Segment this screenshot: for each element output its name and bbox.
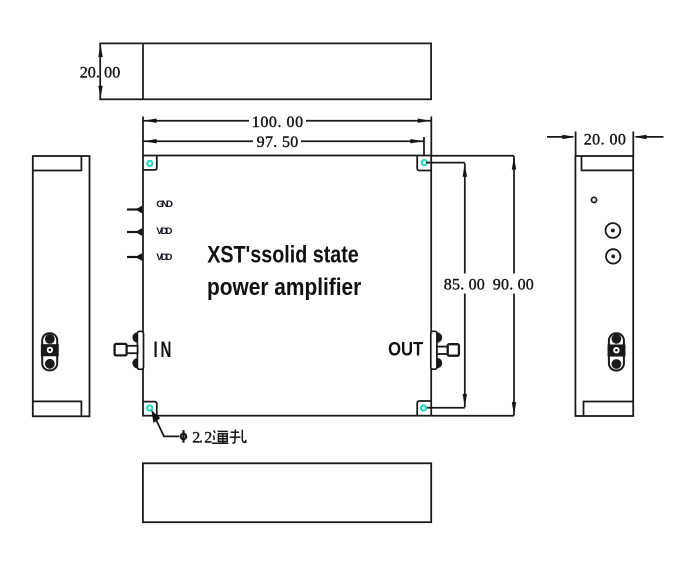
- svg-text:100. 00: 100. 00: [252, 114, 303, 131]
- svg-text:IN: IN: [154, 337, 175, 362]
- svg-text:VDD: VDD: [156, 252, 172, 263]
- svg-text:OUT: OUT: [388, 339, 423, 361]
- svg-text:20. 00: 20. 00: [584, 131, 626, 148]
- svg-text:85. 00: 85. 00: [444, 276, 485, 293]
- svg-text:GND: GND: [156, 199, 173, 210]
- svg-text:power amplifier: power amplifier: [207, 274, 362, 301]
- svg-text:90. 00: 90. 00: [493, 276, 534, 293]
- svg-text:2. 2: 2. 2: [192, 429, 212, 446]
- svg-text:XST'ssolid state: XST'ssolid state: [207, 242, 359, 269]
- svg-text:97. 50: 97. 50: [257, 134, 299, 151]
- svg-text:20. 00: 20. 00: [80, 65, 121, 82]
- svg-text:VDD: VDD: [156, 226, 172, 237]
